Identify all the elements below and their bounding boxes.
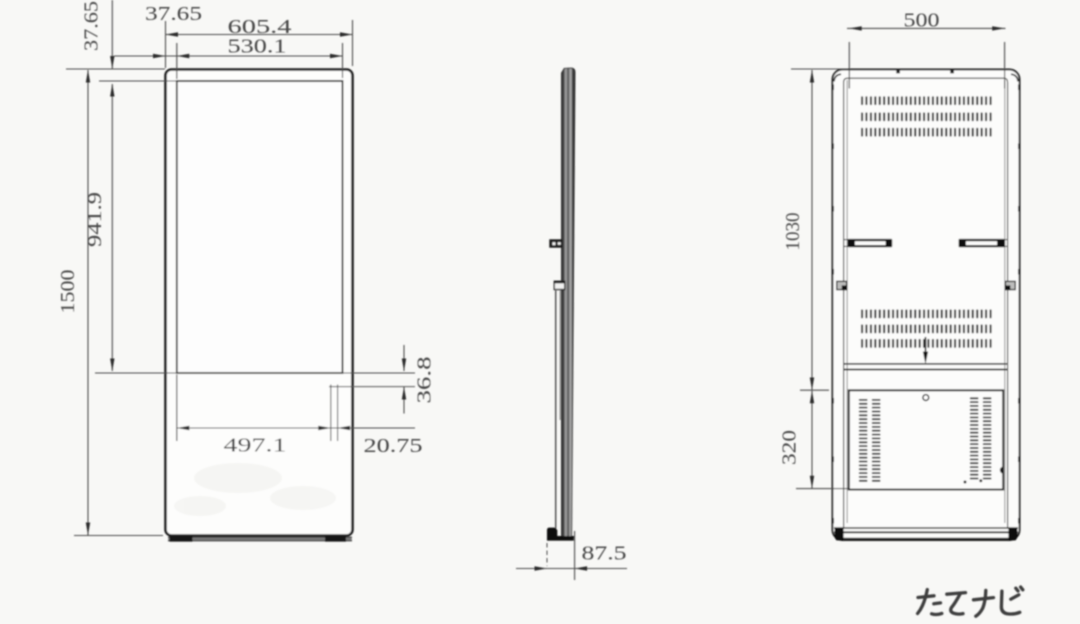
svg-text:1030: 1030 [782, 213, 804, 251]
svg-text:1500: 1500 [57, 270, 79, 314]
svg-text:37.65: 37.65 [81, 1, 103, 51]
svg-text:36.8: 36.8 [414, 357, 436, 404]
svg-text:37.65: 37.65 [145, 3, 202, 25]
svg-text:20.75: 20.75 [364, 435, 423, 457]
svg-text:497.1: 497.1 [224, 435, 287, 457]
svg-text:320: 320 [779, 430, 801, 465]
svg-text:530.1: 530.1 [228, 36, 287, 58]
svg-text:87.5: 87.5 [582, 542, 627, 564]
svg-text:941.9: 941.9 [84, 192, 106, 247]
svg-text:500: 500 [904, 9, 940, 31]
